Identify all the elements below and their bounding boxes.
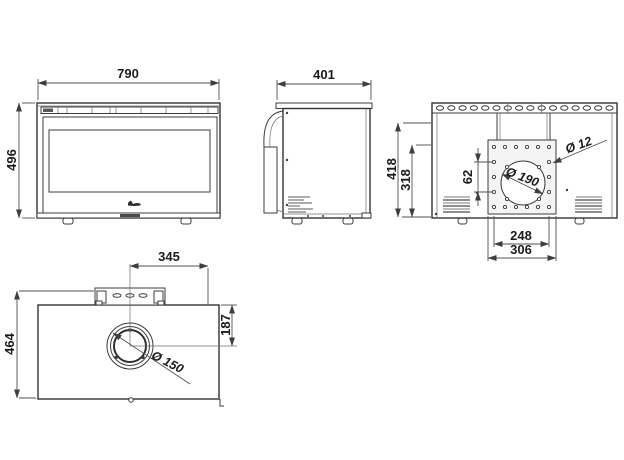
side-depth-dimension: 401 bbox=[277, 67, 371, 100]
front-height-label: 496 bbox=[4, 149, 19, 171]
front-view: 790 496 bbox=[4, 66, 220, 224]
top-flue-offset-y-dimension: 187 bbox=[218, 305, 237, 346]
top-depth-label: 464 bbox=[2, 332, 17, 354]
side-top-plate bbox=[276, 103, 372, 109]
back-feet bbox=[458, 218, 584, 224]
back-lower-height-label: 318 bbox=[398, 169, 413, 191]
top-corner-tab bbox=[220, 399, 224, 406]
side-depth-label: 401 bbox=[313, 67, 335, 82]
back-lower-height-dimension: 318 bbox=[398, 145, 431, 217]
top-flue-offset-label: 345 bbox=[158, 249, 180, 264]
back-view: Ø 190 Ø 12 bbox=[384, 103, 617, 261]
side-view: 401 bbox=[264, 67, 372, 224]
front-glass-window bbox=[49, 130, 210, 192]
back-hole-pitch-label: 62 bbox=[460, 170, 475, 184]
side-body-outline bbox=[283, 109, 370, 219]
side-door-handle bbox=[264, 111, 283, 213]
top-view: 345 464 187 Ø 150 bbox=[2, 249, 237, 406]
top-bottom-notch bbox=[129, 398, 133, 402]
front-top-vent-strip bbox=[41, 107, 218, 114]
front-width-label: 790 bbox=[117, 66, 139, 81]
technical-drawing: 790 496 bbox=[0, 0, 624, 460]
top-flue-offset-y-label: 187 bbox=[218, 314, 233, 336]
front-height-dimension: 496 bbox=[4, 103, 35, 218]
back-height-label: 418 bbox=[384, 158, 399, 180]
front-width-dimension: 790 bbox=[38, 66, 219, 100]
front-feet bbox=[63, 218, 191, 224]
back-bolt-pitch-label: 248 bbox=[510, 228, 532, 243]
drawing-sheet: 790 496 bbox=[0, 0, 624, 460]
back-plate-width-label: 306 bbox=[510, 242, 532, 257]
front-base-slot bbox=[120, 214, 140, 217]
